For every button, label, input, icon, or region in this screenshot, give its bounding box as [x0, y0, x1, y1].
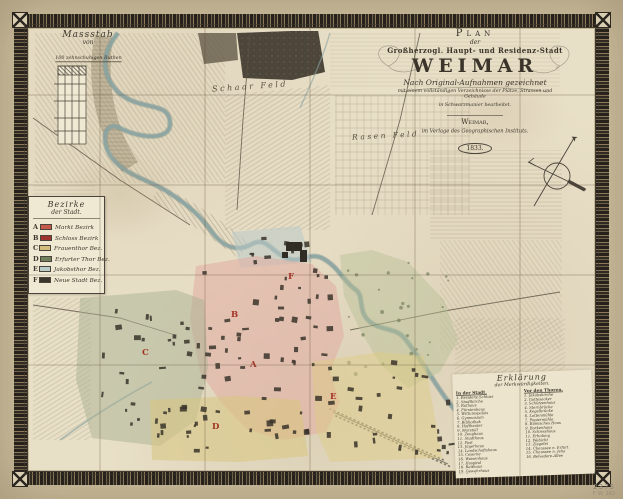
map-sheet: Massstab von 100 zehnschuhigen Ruthen Be… [0, 0, 623, 499]
district-legend-rows: AMarkt BezirkBSchloss BezirkCFrauenthor … [33, 222, 100, 285]
index-col2: Vor den Thoren. 1. Jakobskirche2. Gottes… [523, 386, 591, 472]
publication-year: 1833. [458, 143, 491, 154]
scale-panel: Massstab von 100 zehnschuhigen Ruthen [38, 30, 138, 64]
legend-entry: AMarkt Bezirk [33, 222, 100, 233]
publisher-city: Weimar, [447, 115, 503, 126]
border-corner-ornament [12, 12, 28, 28]
margin-notes: 2375 F. W. 182 [593, 483, 615, 497]
scale-unit-label: 100 zehnschuhigen Ruthen [55, 55, 121, 62]
index-entry: 16. Belvedere-Allee [526, 453, 591, 459]
district-marker-c: C [142, 348, 149, 358]
legend-color-swatch [39, 277, 51, 283]
legend-color-swatch [40, 256, 52, 262]
cartouche-plan-word: Plan [368, 28, 582, 39]
border-band-left [14, 14, 27, 485]
legend-subtitle: der Stadt. [33, 209, 100, 219]
inventory-number: 2375 [593, 483, 615, 491]
publisher-line: im Verlage des Geographischen Instituts. [384, 128, 566, 134]
legend-color-swatch [39, 266, 51, 272]
district-marker-e: E [330, 392, 336, 402]
legend-color-swatch [40, 224, 52, 230]
index-entry: 20. Brauhaus [459, 472, 524, 474]
legend-entry: FNeue Stadt Bez. [33, 275, 100, 286]
cartouche-subtitle-2: mit einem vollständigen Verzeichnisse de… [389, 88, 560, 99]
district-marker-b: B [231, 310, 238, 320]
legend-color-swatch [39, 245, 51, 251]
map-title: WEIMAR [368, 55, 582, 77]
legend-entry: BSchloss Bezirk [33, 233, 100, 244]
legend-title: Bezirke [33, 200, 100, 209]
inventory-mark: F. W. 182 [593, 491, 615, 497]
legend-entry: DErfurter Thor Bez. [33, 254, 100, 265]
index-panel: Erklärung der Merkwürdigkeiten. In der S… [452, 370, 595, 479]
district-marker-a: A [250, 360, 257, 370]
district-marker-d: D [212, 422, 219, 432]
district-legend: Bezirke der Stadt. AMarkt BezirkBSchloss… [28, 196, 105, 294]
scale-subtitle: von [38, 40, 138, 45]
title-cartouche: Plan der Großherzogl. Haupt- und Residen… [368, 28, 582, 154]
district-marker-f: F [288, 272, 294, 282]
border-corner-ornament [12, 471, 28, 487]
border-corner-ornament [595, 12, 611, 28]
cartouche-dedication: Großherzogl. Haupt- und Residenz-Stadt [368, 46, 582, 55]
index-col1: In der Stadt. 1. Residenz-Schloss2. Stad… [456, 388, 524, 474]
border-band-top [14, 14, 609, 27]
legend-color-swatch [40, 235, 52, 241]
cartouche-der-word: der [368, 39, 582, 46]
cartouche-subtitle-3: in Schwarzmanier bearbeitet. [389, 102, 560, 108]
border-band-right [596, 14, 609, 485]
legend-entry: CFrauenthor Bez. [33, 243, 100, 254]
cartouche-subtitle-1: Nach Original-Aufnahmen gezeichnet [368, 77, 582, 88]
legend-entry: EJakobsthor Bez. [33, 264, 100, 275]
